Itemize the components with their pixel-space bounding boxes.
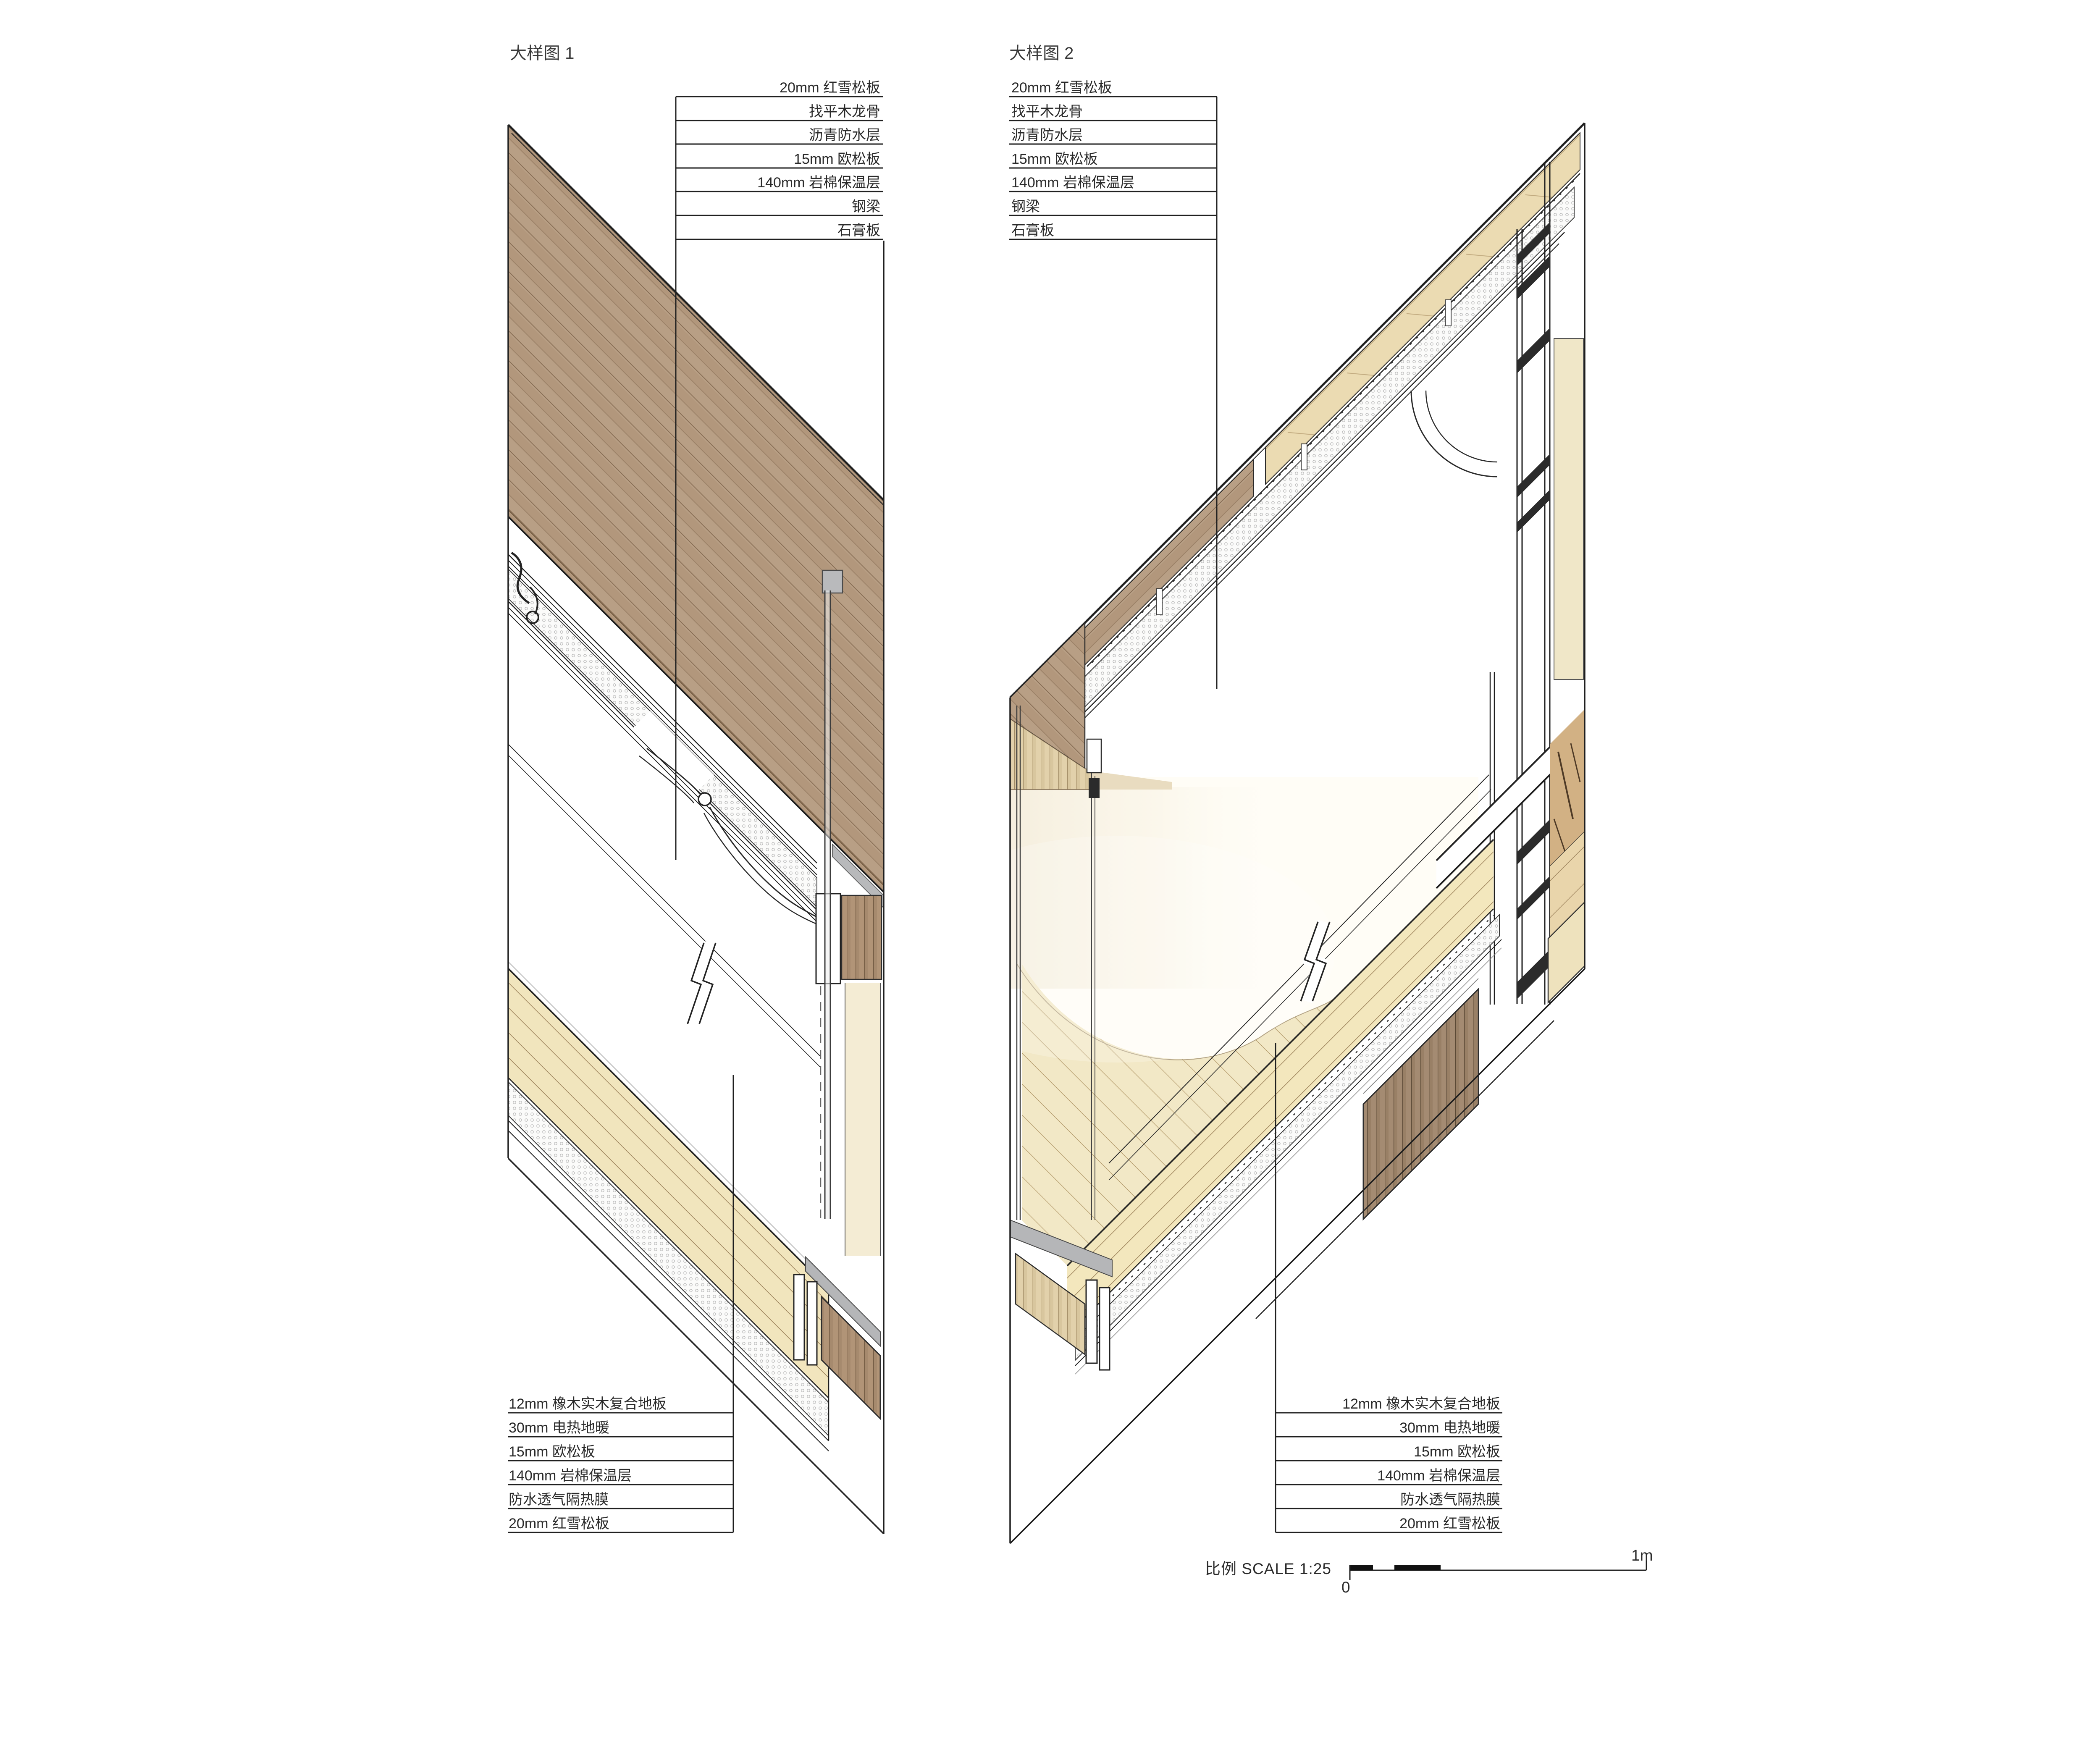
svg-text:0: 0 [1341,1579,1350,1596]
svg-text:12mm 橡木实木复合地板: 12mm 橡木实木复合地板 [509,1396,667,1412]
svg-text:钢梁: 钢梁 [852,199,880,215]
svg-text:140mm 岩棉保温层: 140mm 岩棉保温层 [509,1468,632,1484]
svg-text:找平木龙骨: 找平木龙骨 [1011,104,1083,120]
svg-text:140mm 岩棉保温层: 140mm 岩棉保温层 [1011,175,1134,191]
svg-text:12mm 橡木实木复合地板: 12mm 橡木实木复合地板 [1342,1396,1500,1412]
svg-text:140mm 岩棉保温层: 140mm 岩棉保温层 [1377,1468,1500,1484]
svg-text:20mm 红雪松板: 20mm 红雪松板 [780,80,880,96]
svg-text:大样图 1: 大样图 1 [510,44,574,63]
svg-text:石膏板: 石膏板 [837,223,880,239]
svg-text:1m: 1m [1631,1547,1653,1564]
svg-text:15mm 欧松板: 15mm 欧松板 [509,1444,595,1460]
svg-text:大样图 2: 大样图 2 [1009,44,1074,63]
svg-text:20mm 红雪松板: 20mm 红雪松板 [1399,1516,1500,1532]
svg-text:沥青防水层: 沥青防水层 [809,127,880,143]
svg-text:30mm 电热地暖: 30mm 电热地暖 [1399,1420,1500,1436]
svg-text:15mm 欧松板: 15mm 欧松板 [1011,151,1098,167]
svg-text:防水透气隔热膜: 防水透气隔热膜 [1400,1492,1500,1508]
svg-text:30mm 电热地暖: 30mm 电热地暖 [509,1420,609,1436]
svg-text:比例 SCALE 1:25: 比例 SCALE 1:25 [1205,1560,1331,1577]
svg-text:钢梁: 钢梁 [1011,199,1040,215]
svg-text:140mm 岩棉保温层: 140mm 岩棉保温层 [757,175,880,191]
svg-text:15mm 欧松板: 15mm 欧松板 [794,151,880,167]
svg-text:找平木龙骨: 找平木龙骨 [809,104,880,120]
svg-text:防水透气隔热膜: 防水透气隔热膜 [509,1492,609,1508]
svg-text:15mm 欧松板: 15mm 欧松板 [1414,1444,1500,1460]
svg-text:沥青防水层: 沥青防水层 [1011,127,1083,143]
svg-text:20mm 红雪松板: 20mm 红雪松板 [1011,80,1112,96]
svg-text:石膏板: 石膏板 [1011,223,1054,239]
svg-text:20mm 红雪松板: 20mm 红雪松板 [509,1516,609,1532]
